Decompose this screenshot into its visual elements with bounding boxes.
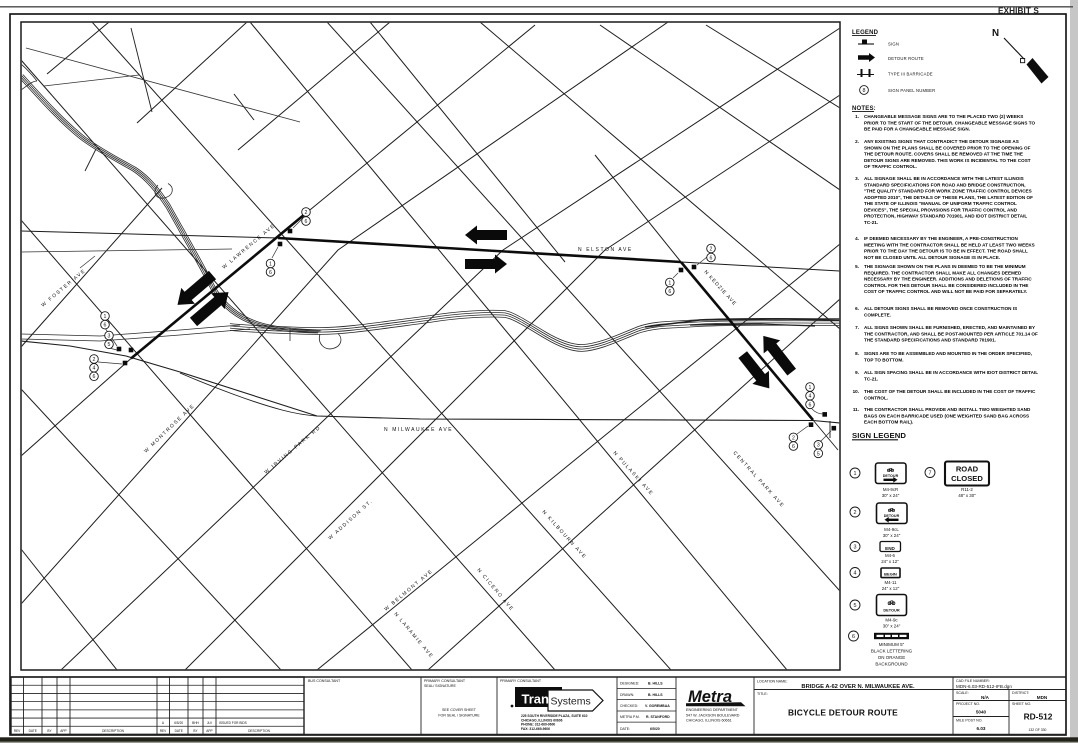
svg-text:R11-2: R11-2 — [961, 487, 973, 492]
svg-text:M4-6: M4-6 — [885, 553, 896, 558]
svg-text:CONTROL.: CONTROL. — [864, 395, 888, 400]
svg-text:BUS CONSULTANT: BUS CONSULTANT — [308, 679, 341, 683]
svg-text:6: 6 — [792, 444, 795, 450]
svg-text:V. GOREMBAA: V. GOREMBAA — [645, 704, 670, 708]
svg-text:ALL DETOUR SIGNS SHALL BE REMO: ALL DETOUR SIGNS SHALL BE REMOVED ONCE C… — [864, 306, 1017, 311]
svg-text:"THE QUALITY STANDARD FOR WORK: "THE QUALITY STANDARD FOR WORK ZONE TRAF… — [864, 189, 1032, 194]
svg-text:NOTES:: NOTES: — [852, 106, 876, 112]
svg-text:9.: 9. — [855, 370, 859, 375]
svg-text:4.: 4. — [855, 236, 859, 241]
svg-text:6: 6 — [104, 322, 107, 328]
svg-text:DETOUR ROUTE: DETOUR ROUTE — [888, 56, 924, 61]
svg-text:SIGNS ARE TO BE ASSEMBLED AND: SIGNS ARE TO BE ASSEMBLED AND MOUNTED IN… — [864, 351, 1032, 356]
svg-text:6/5/20: 6/5/20 — [174, 721, 183, 725]
svg-text:24" x 12": 24" x 12" — [881, 559, 899, 564]
svg-text:BHH: BHH — [192, 721, 199, 725]
svg-text:DETOUR: DETOUR — [883, 608, 900, 613]
svg-text:REV: REV — [160, 729, 167, 733]
svg-text:1: 1 — [668, 280, 671, 286]
svg-text:BAGS ON EACH BARRICADE USED (O: BAGS ON EACH BARRICADE USED (ONE WEIGHTE… — [864, 413, 1029, 418]
svg-text:ON ORANGE: ON ORANGE — [878, 655, 906, 660]
svg-text:ADOPTED 2010", THE DETAILS OF: ADOPTED 2010", THE DETAILS OF THESE PLAN… — [864, 195, 1033, 200]
svg-text:B. HILLS: B. HILLS — [648, 693, 663, 697]
svg-text:SEE COVER SHEET: SEE COVER SHEET — [442, 708, 477, 712]
svg-text:CONTROL FOR THIS DETOUR SHALL: CONTROL FOR THIS DETOUR SHALL BE CONSIDE… — [864, 283, 1029, 288]
svg-text:COST OF TRAFFIC CONTROL AND WI: COST OF TRAFFIC CONTROL AND WILL NOT BE … — [864, 289, 1027, 294]
svg-text:BICYCLE DETOUR ROUTE: BICYCLE DETOUR ROUTE — [788, 708, 898, 718]
svg-text:CLOSED: CLOSED — [951, 474, 983, 483]
svg-text:PROTECTION, HIGHWAY STANDARD 7: PROTECTION, HIGHWAY STANDARD 701901, AND… — [864, 214, 1027, 219]
svg-text:1: 1 — [809, 385, 812, 391]
svg-text:7: 7 — [929, 470, 932, 476]
svg-text:DETOUR: DETOUR — [884, 514, 900, 518]
svg-text:30" x 24": 30" x 24" — [882, 493, 900, 498]
svg-text:5.: 5. — [855, 264, 859, 269]
svg-text:MINIMUM 5": MINIMUM 5" — [879, 642, 905, 647]
svg-text:8.: 8. — [855, 351, 859, 356]
svg-text:THE SIGNAGE SHOWN ON THE PLANS: THE SIGNAGE SHOWN ON THE PLANS IN DEEMED… — [864, 264, 1026, 269]
svg-text:TOP TO BOTTOM.: TOP TO BOTTOM. — [864, 357, 904, 362]
svg-text:8: 8 — [863, 88, 866, 94]
svg-text:TITLE:: TITLE: — [757, 692, 768, 696]
svg-text:PRIMARY CONSULTANT: PRIMARY CONSULTANT — [424, 679, 466, 683]
svg-text:1: 1 — [854, 471, 857, 477]
svg-text:6.03: 6.03 — [977, 726, 986, 731]
svg-text:COMPLETE.: COMPLETE. — [864, 312, 891, 317]
svg-text:547 W. JACKSON BOULEVARD: 547 W. JACKSON BOULEVARD — [686, 713, 740, 717]
svg-text:10.: 10. — [853, 389, 859, 394]
svg-text:APP: APP — [206, 729, 212, 733]
svg-text:6: 6 — [710, 255, 713, 261]
svg-text:MEETING WITH THE CONTRACTOR SH: MEETING WITH THE CONTRACTOR SHALL BE HEL… — [864, 242, 1035, 247]
svg-text:2: 2 — [710, 246, 713, 252]
svg-text:THE STANDARD SPECIFICATIONS AN: THE STANDARD SPECIFICATIONS AND STANDARD… — [864, 338, 996, 343]
svg-text:OF TRAFFIC CONTROL.: OF TRAFFIC CONTROL. — [864, 164, 917, 169]
svg-text:3.: 3. — [855, 176, 859, 181]
svg-text:EACH BOTTOM RAIL).: EACH BOTTOM RAIL). — [864, 420, 913, 425]
svg-text:DATE:: DATE: — [620, 727, 630, 731]
svg-text:2.: 2. — [855, 139, 859, 144]
svg-text:BLACK LETTERING: BLACK LETTERING — [871, 649, 913, 654]
svg-text:ISSUED FOR BIDS: ISSUED FOR BIDS — [219, 721, 247, 725]
svg-text:2: 2 — [93, 357, 96, 363]
svg-text:11.: 11. — [853, 407, 859, 412]
svg-text:BRIDGE A-62 OVER N. MILWAUKEE: BRIDGE A-62 OVER N. MILWAUKEE AVE. — [801, 684, 915, 690]
svg-text:DETOUR: DETOUR — [883, 474, 899, 478]
svg-text:IF DEEMED NECESSARY BY THE ENG: IF DEEMED NECESSARY BY THE ENGINEER, A P… — [864, 236, 1018, 241]
svg-text:SIGN: SIGN — [888, 42, 899, 47]
svg-text:FOR SEAL / SIGNATURE: FOR SEAL / SIGNATURE — [438, 714, 480, 718]
svg-text:1: 1 — [269, 261, 272, 267]
svg-text:SHEET NO.: SHEET NO. — [1012, 702, 1031, 706]
svg-text:BACKGROUND: BACKGROUND — [875, 661, 908, 666]
svg-text:CHANGEABLE MESSAGE SIGNS ARE T: CHANGEABLE MESSAGE SIGNS ARE TO THE PLAC… — [864, 114, 1023, 119]
svg-text:THE DETOUR ROUTE. COVERS SHALL: THE DETOUR ROUTE. COVERS SHALL BE REMOVE… — [864, 152, 1023, 157]
svg-text:7.: 7. — [855, 325, 859, 330]
svg-text:M4-9cL: M4-9cL — [884, 527, 899, 532]
svg-text:Tran: Tran — [522, 692, 550, 707]
svg-text:6/5/20: 6/5/20 — [650, 727, 660, 731]
svg-text:FAX: 312-669-9606: FAX: 312-669-9606 — [521, 727, 550, 731]
svg-text:SIGN LEGEND: SIGN LEGEND — [852, 431, 906, 440]
svg-text:LOCATION NAME:: LOCATION NAME: — [757, 680, 787, 684]
svg-text:N MILWAUKEE AVE: N MILWAUKEE AVE — [384, 427, 453, 433]
svg-text:4: 4 — [809, 394, 812, 400]
svg-text:DATE: DATE — [29, 729, 37, 733]
svg-text:132 OF 330: 132 OF 330 — [1029, 728, 1047, 732]
svg-text:DETOUR SIGNS ARE REMOVED. THIS: DETOUR SIGNS ARE REMOVED. THIS WORK IS I… — [864, 158, 1031, 163]
svg-text:R. STANFORD: R. STANFORD — [646, 715, 670, 719]
svg-text:5: 5 — [854, 603, 857, 609]
svg-text:ENGINEERING DEPARTMENT: ENGINEERING DEPARTMENT — [686, 708, 739, 712]
svg-text:BE PAID FOR A CHANGEABLE MESSA: BE PAID FOR A CHANGEABLE MESSAGE SIGN. — [864, 127, 970, 132]
svg-text:N/A: N/A — [981, 695, 990, 700]
svg-text:RD-512: RD-512 — [1024, 712, 1053, 722]
svg-text:B. HILLS: B. HILLS — [648, 682, 663, 686]
svg-text:PRIMARY CONSULTANT: PRIMARY CONSULTANT — [500, 679, 542, 683]
svg-text:CHECKED:: CHECKED: — [620, 704, 638, 708]
svg-text:N: N — [992, 28, 999, 39]
svg-text:LEGEND: LEGEND — [852, 30, 879, 36]
svg-text:MDN-6.03-RD-512-IFB.dgn: MDN-6.03-RD-512-IFB.dgn — [956, 684, 1012, 689]
svg-text:REQUIRED. THE CONTRACTOR SHALL: REQUIRED. THE CONTRACTOR SHALL MAKE ALL … — [864, 270, 1022, 275]
svg-text:4: 4 — [854, 570, 857, 576]
svg-text:MDN: MDN — [1037, 695, 1048, 700]
svg-text:DESIGNED:: DESIGNED: — [620, 682, 639, 686]
svg-text:DRAWN:: DRAWN: — [620, 693, 634, 697]
svg-text:3: 3 — [108, 333, 111, 339]
svg-text:5040: 5040 — [976, 710, 987, 715]
svg-text:M4-9cR: M4-9cR — [883, 487, 898, 492]
svg-text:30" x 24": 30" x 24" — [883, 533, 901, 538]
svg-text:CAD FILE NUMBER:: CAD FILE NUMBER: — [956, 679, 990, 683]
svg-text:3: 3 — [854, 544, 857, 550]
svg-text:SIGN PANEL NUMBER: SIGN PANEL NUMBER — [888, 88, 935, 93]
svg-text:Systems: Systems — [551, 696, 591, 708]
svg-text:2: 2 — [854, 510, 857, 516]
svg-text:1: 1 — [104, 314, 107, 320]
svg-text:ANY EXISTING SIGNS THAT CONTRA: ANY EXISTING SIGNS THAT CONTRADICT THE D… — [864, 139, 1019, 144]
svg-text:6.: 6. — [855, 306, 859, 311]
svg-text:6: 6 — [852, 634, 855, 640]
svg-text:M4-11: M4-11 — [884, 580, 897, 585]
svg-text:END: END — [885, 546, 895, 551]
svg-text:2: 2 — [305, 210, 308, 216]
svg-text:PRIOR TO THE START OF THE DETO: PRIOR TO THE START OF THE DETOUR. CHANGE… — [864, 120, 1036, 125]
svg-text:SHOWN ON THE PLANS SHALL BE CO: SHOWN ON THE PLANS SHALL BE COVERED PRIO… — [864, 145, 1031, 150]
svg-text:CHICAGO, ILLINOIS 60661: CHICAGO, ILLINOIS 60661 — [686, 719, 732, 723]
svg-text:METRA P.M.: METRA P.M. — [620, 715, 640, 719]
svg-text:30" x 24": 30" x 24" — [883, 624, 901, 629]
svg-text:ROAD: ROAD — [956, 465, 979, 474]
svg-text:NOT BE CLOSED UNTIL ALL DETOUR: NOT BE CLOSED UNTIL ALL DETOUR SIGNAGE I… — [864, 255, 1000, 260]
svg-text:DATE: DATE — [175, 729, 183, 733]
svg-text:MILE POST NO.: MILE POST NO. — [956, 718, 983, 722]
svg-text:TYPE III BARRICADE: TYPE III BARRICADE — [888, 72, 933, 77]
svg-text:TC-21.: TC-21. — [864, 376, 878, 381]
svg-text:SCALE:: SCALE: — [956, 691, 969, 695]
svg-text:4: 4 — [93, 366, 96, 372]
svg-text:ALL SIGNAGE SHALL BE IN ACCORD: ALL SIGNAGE SHALL BE IN ACCORDANCE WITH … — [864, 176, 1024, 181]
svg-text:SEAL/ SIGNATURE: SEAL/ SIGNATURE — [424, 684, 456, 688]
svg-text:THE STATE OF ILLINOIS "MANUAL: THE STATE OF ILLINOIS "MANUAL OF UNIFORM… — [864, 201, 1017, 206]
svg-text:DISTRICT:: DISTRICT: — [1012, 691, 1029, 695]
svg-text:5: 5 — [817, 451, 820, 457]
svg-text:DEVICES", THE SPECIAL PROVISIO: DEVICES", THE SPECIAL PROVISIONS FOR TRA… — [864, 207, 1018, 212]
svg-text:6: 6 — [93, 374, 96, 380]
svg-text:TC-21.: TC-21. — [864, 220, 878, 225]
svg-text:THE CONTRACTOR SHALL PROVIDE A: THE CONTRACTOR SHALL PROVIDE AND INSTALL… — [864, 407, 1031, 412]
svg-text:ALL SIGNS SHOWN SHALL BE FURNI: ALL SIGNS SHOWN SHALL BE FURNISHED, EREC… — [864, 325, 1035, 330]
svg-text:THE COST OF THE DETOUR SHALL B: THE COST OF THE DETOUR SHALL BE INCLUDED… — [864, 389, 1036, 394]
svg-text:5: 5 — [108, 342, 111, 348]
svg-text:1.: 1. — [855, 114, 859, 119]
svg-text:BEGIN: BEGIN — [884, 571, 897, 576]
svg-text:6: 6 — [269, 270, 272, 276]
svg-text:DESCRIPTION: DESCRIPTION — [248, 729, 270, 733]
svg-text:STANDARD SPECIFICATIONS FOR RO: STANDARD SPECIFICATIONS FOR ROAD AND BRI… — [864, 182, 1026, 187]
svg-text:PROJECT NO.: PROJECT NO. — [956, 702, 980, 706]
svg-text:6: 6 — [668, 289, 671, 295]
svg-text:48" x 30": 48" x 30" — [958, 493, 976, 498]
svg-text:APP: APP — [60, 729, 66, 733]
svg-text:DESCRIPTION: DESCRIPTION — [102, 729, 124, 733]
svg-text:N ELSTON AVE: N ELSTON AVE — [578, 247, 633, 253]
svg-text:M4-9c: M4-9c — [885, 618, 898, 623]
svg-text:2: 2 — [792, 435, 795, 441]
svg-text:THE CONTRACTOR, AND SHALL BE P: THE CONTRACTOR, AND SHALL BE POST-MOUNTE… — [864, 331, 1038, 336]
svg-text:ALL SIGN SPACING SHALL BE IN A: ALL SIGN SPACING SHALL BE IN ACCORDANCE … — [864, 370, 1038, 375]
svg-text:6: 6 — [305, 219, 308, 225]
svg-text:JLV: JLV — [207, 721, 213, 725]
svg-text:REV: REV — [14, 729, 21, 733]
svg-text:PRIOR TO THE DAY THE DETOUR IS: PRIOR TO THE DAY THE DETOUR IS TO BE IN … — [864, 249, 1028, 254]
svg-text:24" x 12": 24" x 12" — [882, 586, 900, 591]
svg-text:NECESSARY BY THE ENGINEER. ADD: NECESSARY BY THE ENGINEER. ADDITIONS AND… — [864, 277, 1032, 282]
svg-text:3: 3 — [817, 443, 820, 449]
svg-text:6: 6 — [809, 402, 812, 408]
